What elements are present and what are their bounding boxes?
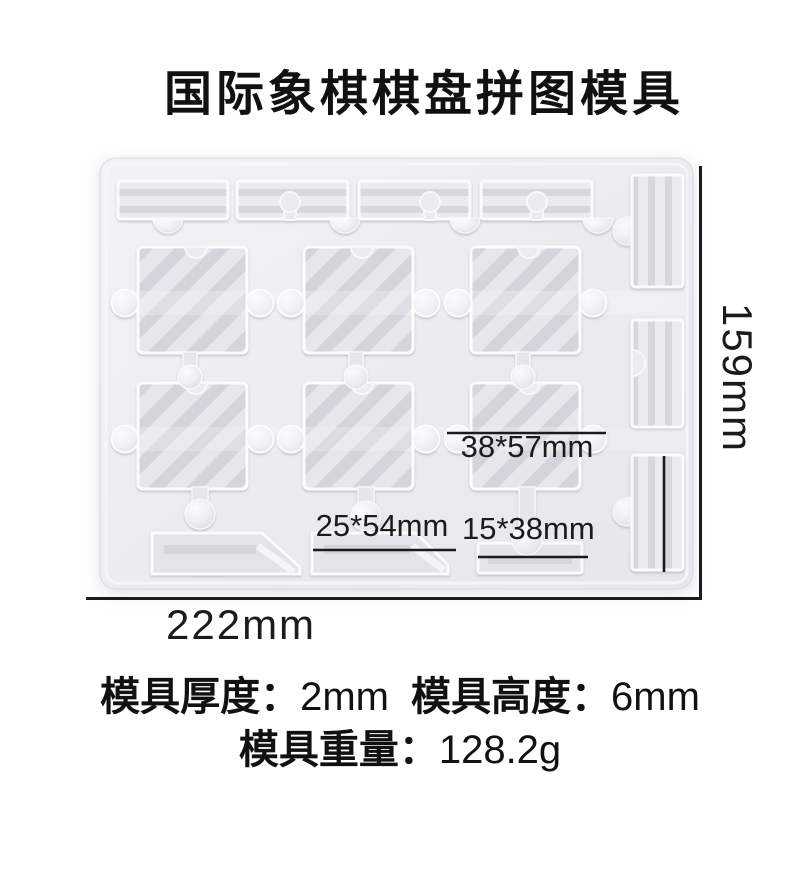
annotation-piece-medium: 25*54mm xyxy=(306,508,458,544)
dimension-label-width: 222mm xyxy=(166,601,316,649)
page-title: 国际象棋棋盘拼图模具 xyxy=(0,54,800,124)
annotation-piece-small: 15*38mm xyxy=(462,511,592,547)
mold-height-label: 模具高度： xyxy=(411,675,611,719)
weight-label: 模具重量： xyxy=(239,728,439,772)
dimension-label-height: 159mm xyxy=(713,303,761,453)
annotation-piece-large: 38*57mm xyxy=(445,429,609,465)
thickness-value: 2mm xyxy=(300,675,389,719)
weight-value: 128.2g xyxy=(439,728,561,772)
spec-line-thickness-height: 模具厚度：2mm模具高度：6mm xyxy=(0,664,800,722)
mold-height-value: 6mm xyxy=(611,675,700,719)
thickness-label: 模具厚度： xyxy=(100,675,300,719)
spec-line-weight: 模具重量：128.2g xyxy=(0,717,800,775)
